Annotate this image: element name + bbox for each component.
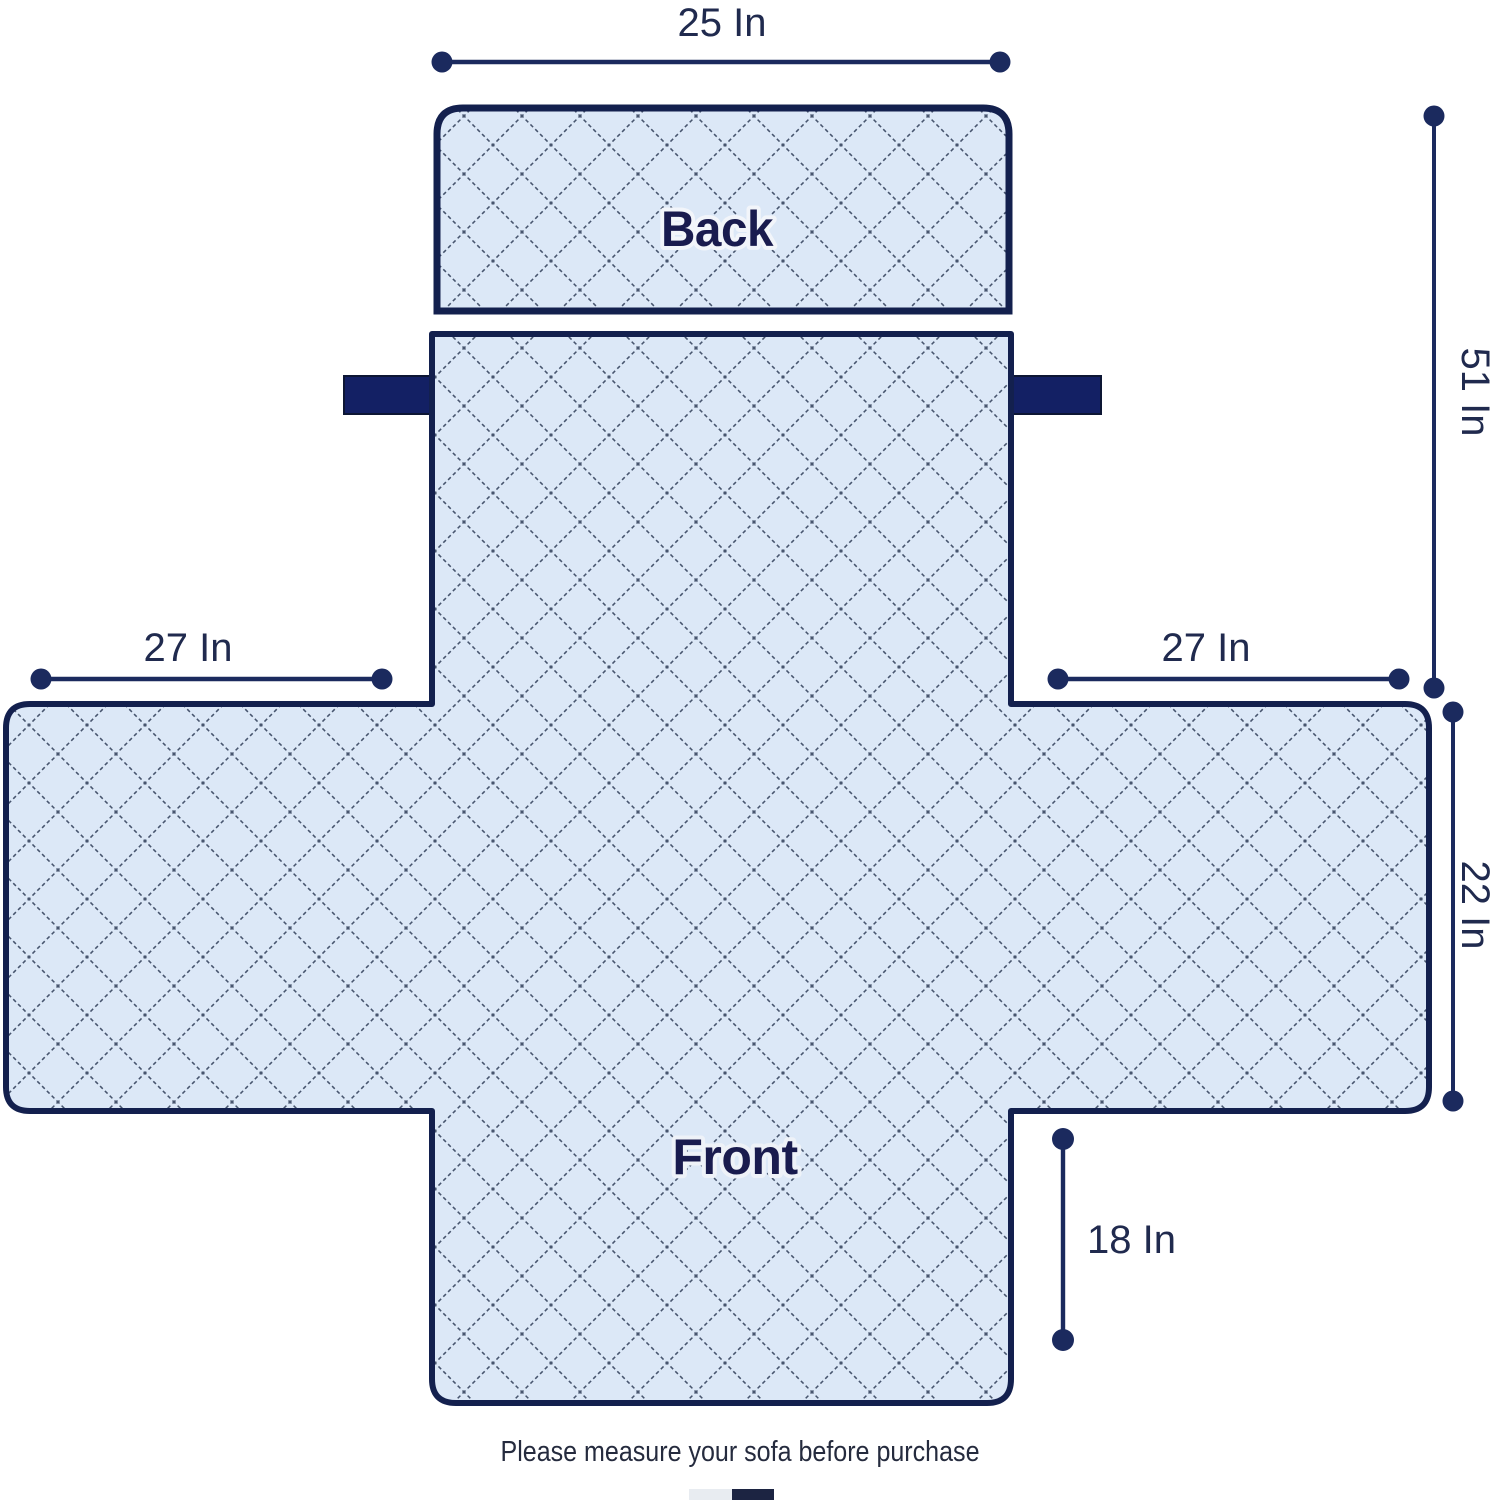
svg-text:25 In: 25 In bbox=[678, 1, 767, 45]
svg-text:18 In: 18 In bbox=[1087, 1218, 1176, 1262]
svg-text:Front: Front bbox=[672, 1129, 798, 1185]
svg-text:27 In: 27 In bbox=[144, 626, 233, 670]
svg-text:Back: Back bbox=[661, 201, 774, 257]
svg-text:27 In: 27 In bbox=[1162, 626, 1251, 670]
svg-text:Please measure your sofa befor: Please measure your sofa before purchase bbox=[501, 1436, 980, 1468]
svg-text:22 In: 22 In bbox=[1453, 861, 1495, 950]
svg-text:51 In: 51 In bbox=[1453, 348, 1495, 437]
